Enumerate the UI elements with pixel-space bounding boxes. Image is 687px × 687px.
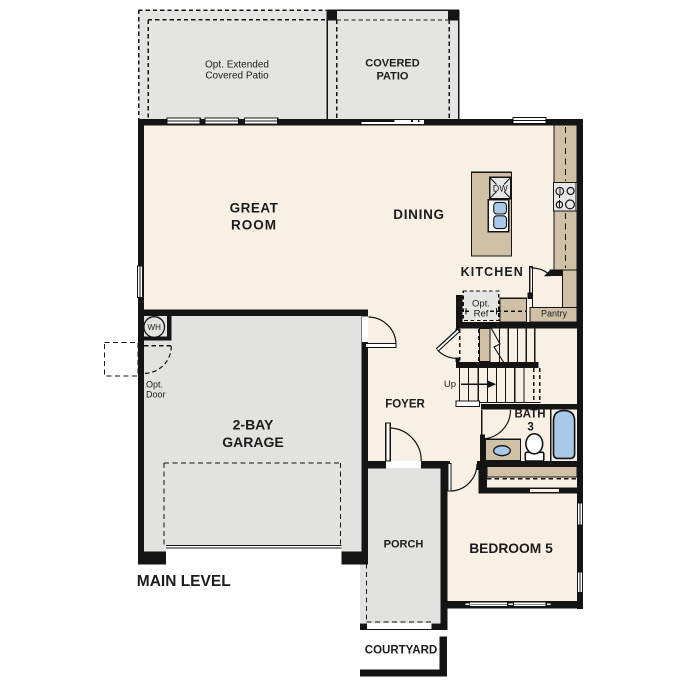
svg-text:Covered Patio: Covered Patio xyxy=(205,71,269,82)
svg-text:ROOM: ROOM xyxy=(231,218,277,233)
svg-text:GARAGE: GARAGE xyxy=(222,434,283,450)
svg-text:WH: WH xyxy=(148,323,162,332)
svg-text:Opt.: Opt. xyxy=(146,380,163,390)
svg-text:BATH: BATH xyxy=(514,409,545,421)
svg-text:DW: DW xyxy=(493,183,508,193)
svg-text:DINING: DINING xyxy=(393,207,444,222)
svg-text:Pantry: Pantry xyxy=(541,309,568,319)
svg-text:PATIO: PATIO xyxy=(377,70,409,82)
svg-text:PORCH: PORCH xyxy=(384,539,424,551)
svg-text:Door: Door xyxy=(146,390,166,400)
svg-text:Up: Up xyxy=(444,379,456,390)
svg-text:GREAT: GREAT xyxy=(230,201,279,216)
svg-text:3: 3 xyxy=(527,421,533,433)
svg-text:MAIN LEVEL: MAIN LEVEL xyxy=(137,573,231,590)
svg-text:Opt. Extended: Opt. Extended xyxy=(205,60,269,71)
svg-text:COVERED: COVERED xyxy=(365,58,419,70)
svg-text:FOYER: FOYER xyxy=(385,399,425,411)
svg-text:KITCHEN: KITCHEN xyxy=(461,265,524,279)
svg-text:Ref: Ref xyxy=(474,309,489,320)
svg-text:BEDROOM 5: BEDROOM 5 xyxy=(469,541,553,556)
svg-text:COURTYARD: COURTYARD xyxy=(365,645,437,657)
svg-text:2-BAY: 2-BAY xyxy=(233,417,274,433)
